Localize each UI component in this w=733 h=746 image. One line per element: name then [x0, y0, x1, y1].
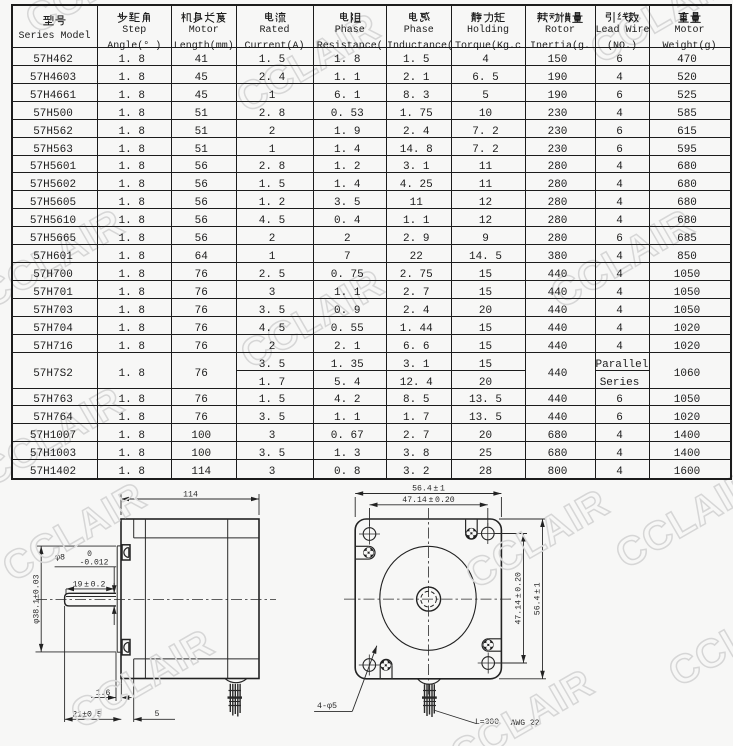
svg-text:19 ± 0.2: 19 ± 0.2: [73, 580, 106, 589]
svg-text:4-φ5: 4-φ5: [317, 701, 337, 711]
svg-text:56.4 ± 1: 56.4 ± 1: [534, 582, 543, 615]
svg-text:5: 5: [155, 710, 160, 719]
svg-text:47.14 ± 0.20: 47.14 ± 0.20: [402, 496, 454, 505]
svg-text:114: 114: [183, 491, 198, 500]
svg-text:47.14 ± 0.20: 47.14 ± 0.20: [515, 572, 524, 624]
svg-text:-0.012: -0.012: [80, 559, 109, 568]
svg-text:56.4 ± 1: 56.4 ± 1: [412, 485, 445, 494]
